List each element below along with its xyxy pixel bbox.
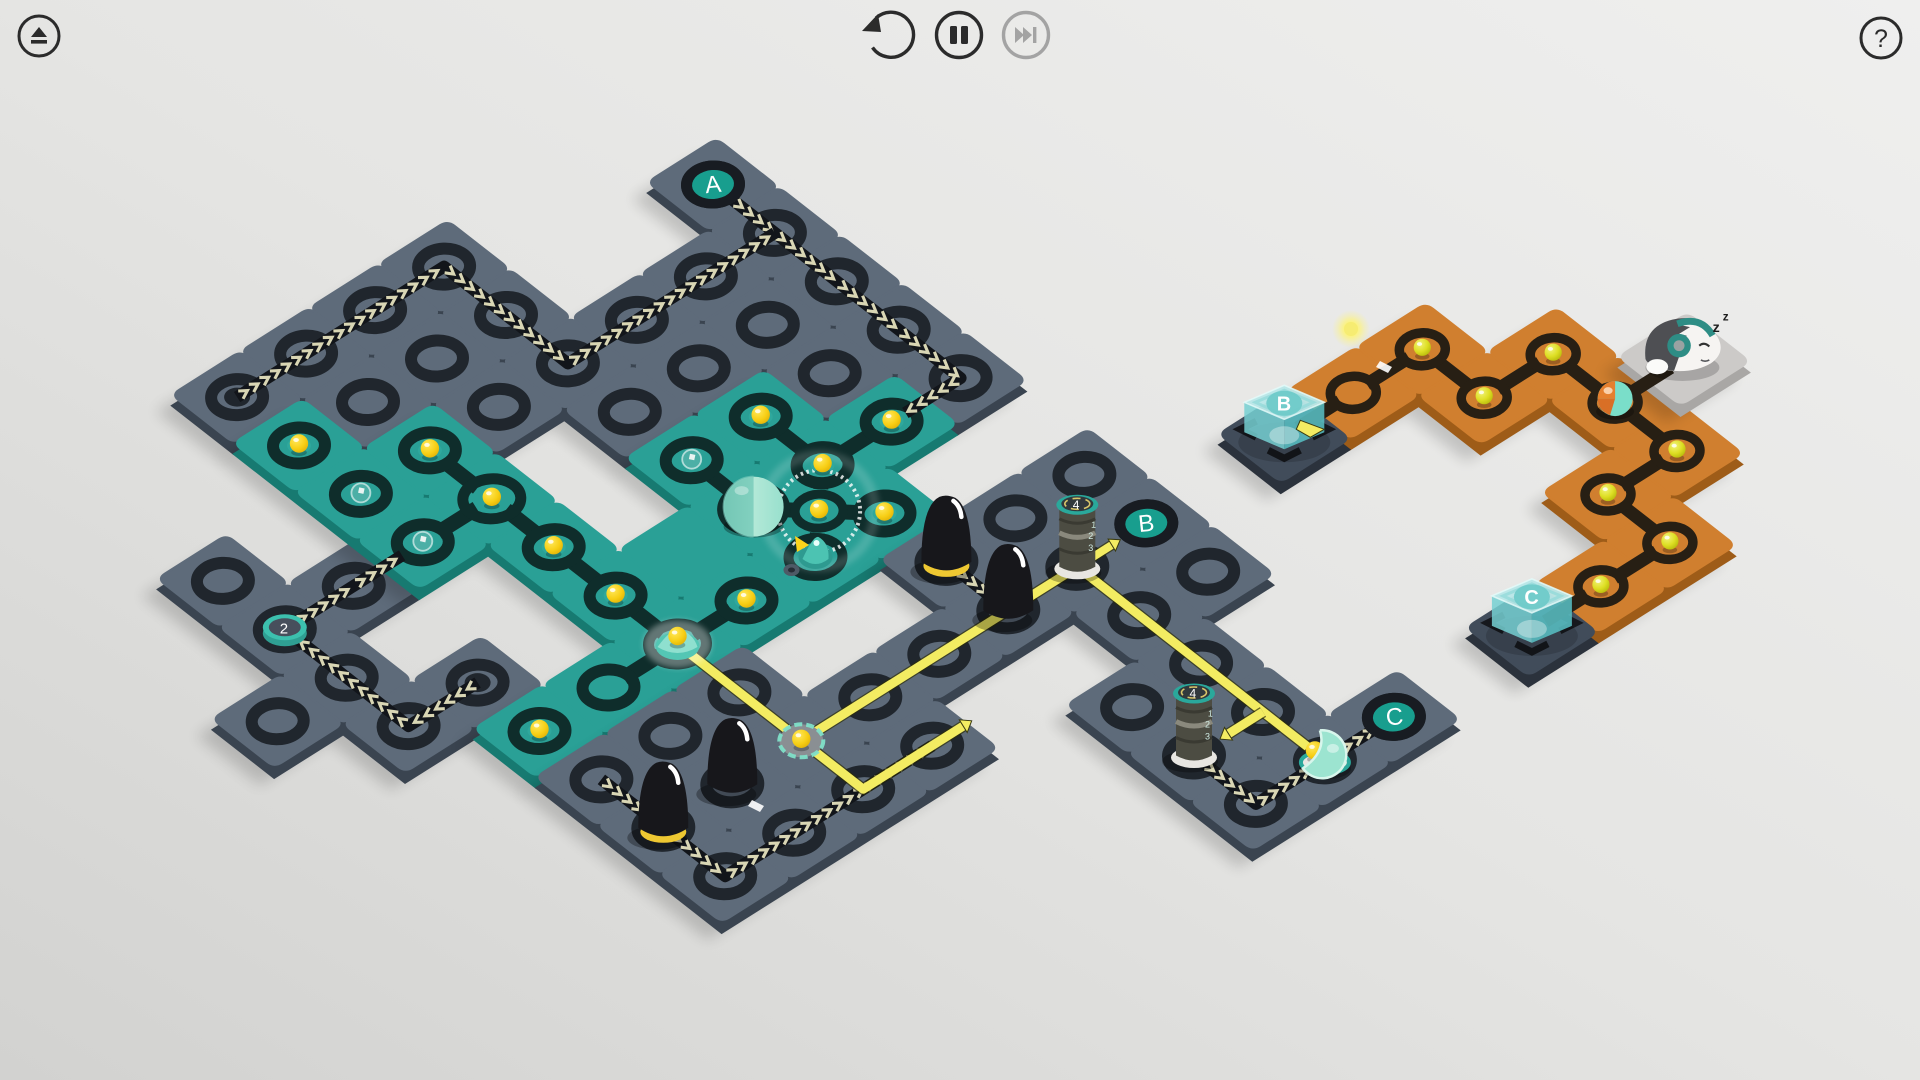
svg-text:3: 3: [1088, 543, 1093, 553]
svg-text:4: 4: [1073, 498, 1080, 512]
svg-text:4: 4: [1190, 687, 1197, 701]
svg-text:1: 1: [1208, 708, 1214, 718]
svg-text:A: A: [704, 171, 723, 200]
svg-text:2: 2: [1205, 720, 1210, 730]
svg-text:B: B: [1137, 510, 1156, 539]
svg-text:B: B: [1277, 393, 1291, 415]
svg-text:3: 3: [1205, 732, 1210, 742]
svg-text:2: 2: [280, 620, 288, 637]
svg-text:C: C: [1385, 703, 1405, 732]
svg-text:1: 1: [1091, 520, 1097, 530]
svg-text:z: z: [1713, 320, 1720, 336]
svg-text:?: ?: [1874, 25, 1888, 53]
svg-text:C: C: [1524, 587, 1538, 609]
svg-text:2: 2: [1088, 531, 1093, 541]
svg-text:z: z: [1723, 310, 1729, 323]
